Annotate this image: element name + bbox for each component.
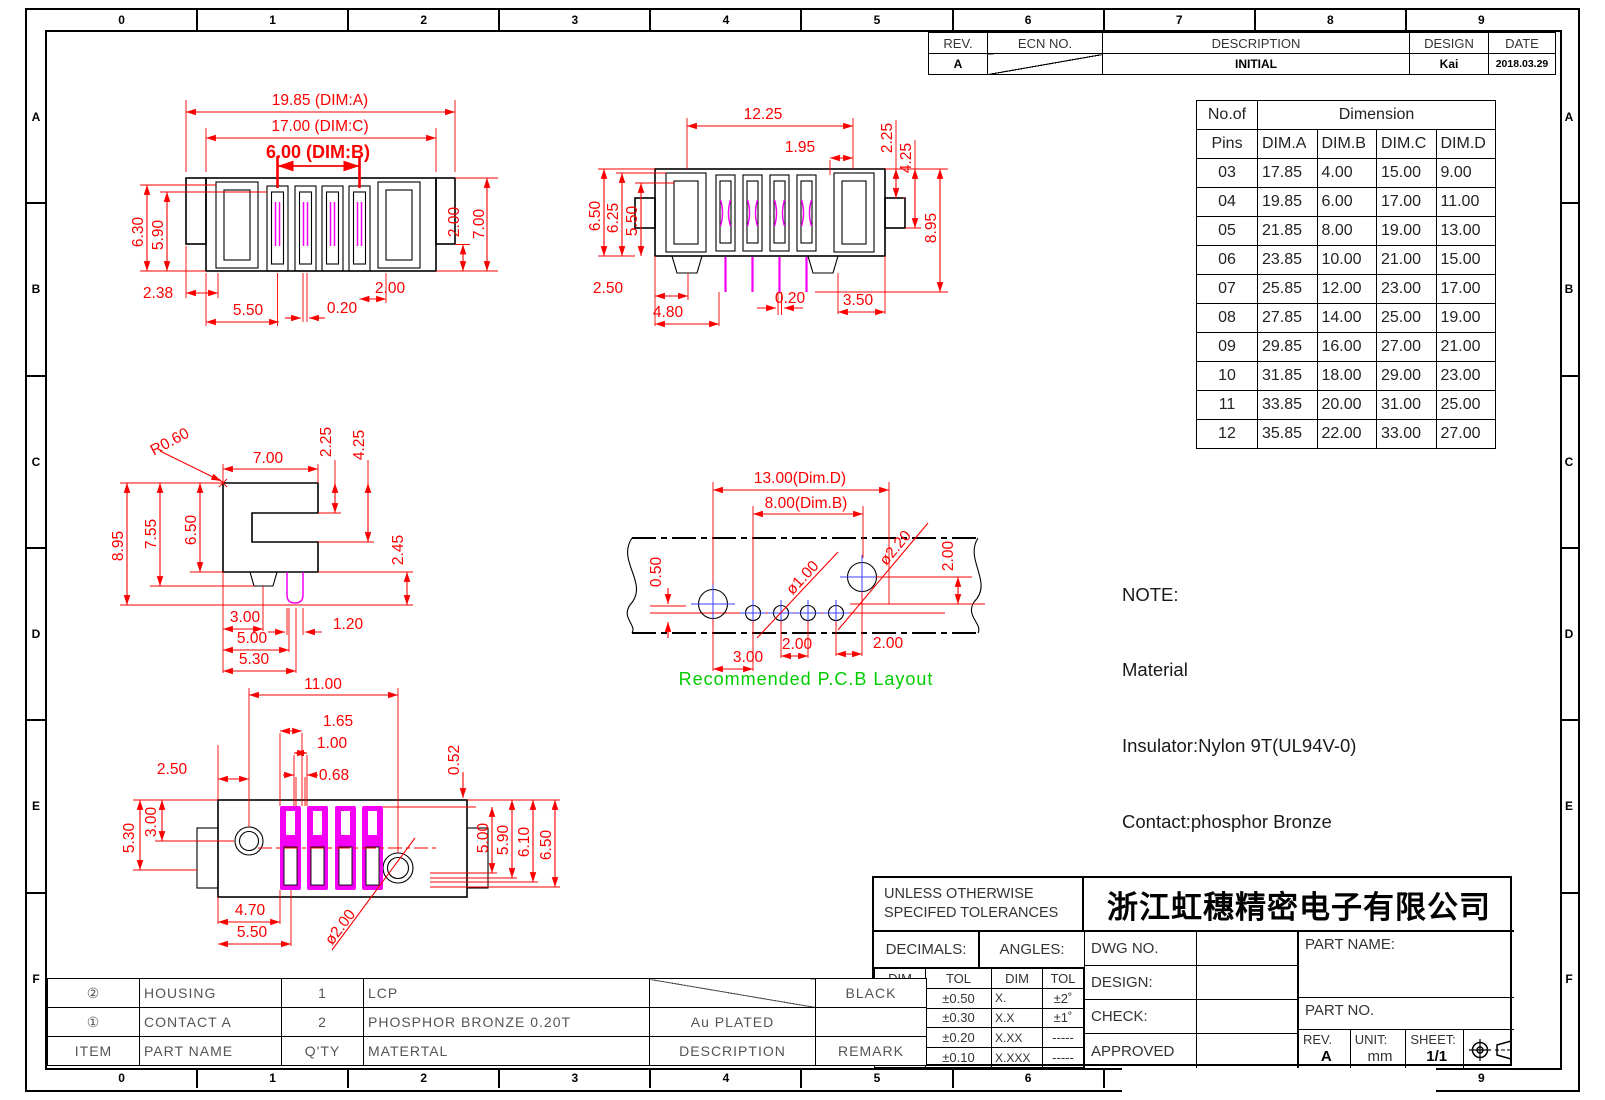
material: PHOSPHOR BRONZE 0.20T xyxy=(364,1008,650,1037)
dim-a: 21.85 xyxy=(1258,217,1318,246)
dim-label: 4.25 xyxy=(351,430,368,460)
qty: 2 xyxy=(282,1008,364,1037)
dim-label: 6.50 xyxy=(538,830,555,861)
title-block: UNLESS OTHERWISE SPECIFED TOLERANCES 浙江虹… xyxy=(872,876,1512,1066)
pins-header-line1: No.of xyxy=(1197,101,1258,130)
zone-label: B xyxy=(1560,204,1578,376)
dimension-group-header: Dimension xyxy=(1258,101,1496,130)
sheet-value: 1/1 xyxy=(1410,1048,1463,1065)
zone-label: 1 xyxy=(198,1068,349,1088)
tol-val: ±2˚ xyxy=(1043,988,1084,1008)
tol-val: ----- xyxy=(1043,1048,1084,1068)
col-header-dim-b: DIM.B xyxy=(1317,130,1377,159)
zone-label: 3 xyxy=(500,10,651,30)
part-name-label: PART NAME: xyxy=(1299,932,1514,998)
approved-value xyxy=(1197,1034,1297,1068)
pin-count: 12 xyxy=(1197,420,1258,449)
pin-count: 04 xyxy=(1197,188,1258,217)
dim-label: 1.95 xyxy=(785,139,815,156)
top-view: ø2.00 11.00 1.65 1.00 0.68 2.50 5.30 3.0… xyxy=(121,676,560,950)
dim-col-header: DIM xyxy=(992,969,1043,989)
dim-d: 13.00 xyxy=(1436,217,1496,246)
table-row: 0623.8510.0021.0015.00 xyxy=(1197,246,1496,275)
tol-val: ±0.50 xyxy=(926,988,992,1008)
zone-label: 2 xyxy=(349,1068,500,1088)
dim-label: 2.25 xyxy=(879,123,896,153)
dim-label: 12.25 xyxy=(744,106,783,123)
table-row: 1133.8520.0031.0025.00 xyxy=(1197,391,1496,420)
dim-label: 8.00(Dim.B) xyxy=(765,495,848,512)
description-value: INITIAL xyxy=(1103,54,1410,75)
decimals-label: DECIMALS: xyxy=(874,932,980,967)
zone-label: B xyxy=(27,204,45,376)
tolerance-title: UNLESS OTHERWISE SPECIFED TOLERANCES xyxy=(874,878,1084,932)
dim-b: 4.00 xyxy=(1317,159,1377,188)
material: LCP xyxy=(364,979,650,1008)
col-header-dim-a: DIM.A xyxy=(1258,130,1318,159)
zone-strip-right: A B C D E F xyxy=(1560,32,1578,1064)
check-label: CHECK: xyxy=(1085,1000,1197,1033)
projection-symbol-cell xyxy=(1464,1030,1514,1068)
part-info-section: PART NAME: PART NO. REV. A UNIT: mm SHEE… xyxy=(1297,932,1514,1068)
table-row: 1235.8522.0033.0027.00 xyxy=(1197,420,1496,449)
dim-label: 3.00 xyxy=(230,609,261,626)
dim-label: 5.30 xyxy=(121,823,138,854)
dim-label: 0.20 xyxy=(327,300,358,317)
pins-header-line2: Pins xyxy=(1197,130,1258,159)
approved-label: APPROVED xyxy=(1085,1034,1197,1068)
dim-label: 6.30 xyxy=(130,217,147,248)
dim-a: 31.85 xyxy=(1258,362,1318,391)
dim-d: 9.00 xyxy=(1436,159,1496,188)
dim-label: 2.00 xyxy=(375,280,406,297)
third-angle-projection-icon xyxy=(1468,1037,1514,1063)
item-header: ITEM xyxy=(48,1037,140,1066)
design-value xyxy=(1197,966,1297,999)
dim-label: 2.25 xyxy=(318,427,335,457)
dim-label: 1.65 xyxy=(323,713,353,730)
zone-label: F xyxy=(27,894,45,1064)
qty-header: Q'TY xyxy=(282,1037,364,1066)
dim-label: 0.50 xyxy=(648,557,665,588)
note-line: Material xyxy=(1122,657,1436,682)
tol-val: ----- xyxy=(1043,1028,1084,1048)
pin-dimension-table: No.of Dimension Pins DIM.A DIM.B DIM.C D… xyxy=(1196,100,1496,449)
dim-label: 4.80 xyxy=(653,304,684,321)
pin-count: 08 xyxy=(1197,304,1258,333)
dim-label: 2.38 xyxy=(143,285,173,302)
dim-label: 6.50 xyxy=(587,201,604,232)
dim-label: 0.68 xyxy=(319,767,349,784)
unit-value: mm xyxy=(1355,1048,1406,1065)
dim-c: 31.00 xyxy=(1377,391,1437,420)
dim-c: 23.00 xyxy=(1377,275,1437,304)
design-value: Kai xyxy=(1410,54,1489,75)
design-header: DESIGN xyxy=(1410,33,1489,54)
zone-label: E xyxy=(27,721,45,893)
dim-label: 2.00 xyxy=(873,635,904,652)
remark: BLACK xyxy=(816,979,927,1008)
table-row: 0317.854.0015.009.00 xyxy=(1197,159,1496,188)
dim-label: 5.50 xyxy=(237,924,268,941)
zone-label: 9 xyxy=(1407,10,1556,30)
rev-label: REV. xyxy=(1303,1032,1332,1047)
dim-label: 13.00(Dim.D) xyxy=(754,470,846,487)
dim-label: 6.00 (DIM:B) xyxy=(266,142,370,162)
dim-label: 17.00 (DIM:C) xyxy=(271,118,368,135)
dim-label: 2.50 xyxy=(593,280,624,297)
side-view: R0.60 7.00 2.25 4.25 8.95 7.55 6.50 2.45… xyxy=(110,425,413,673)
tol-val: ±0.30 xyxy=(926,1008,992,1028)
dim-c: 17.00 xyxy=(1377,188,1437,217)
table-row: 0827.8514.0025.0019.00 xyxy=(1197,304,1496,333)
tolerance-title-line1: UNLESS OTHERWISE xyxy=(884,885,1082,904)
zone-label: 5 xyxy=(802,1068,953,1088)
dim-label: 19.85 (DIM:A) xyxy=(272,92,368,109)
table-header-row: ITEM PART NAME Q'TY MATERTAL DESCRIPTION… xyxy=(48,1037,927,1066)
dim-label: 2.00 xyxy=(940,541,957,572)
dim-label: 7.55 xyxy=(143,519,160,549)
description-header: DESCRIPTION xyxy=(1103,33,1410,54)
table-row: 0725.8512.0023.0017.00 xyxy=(1197,275,1496,304)
pin-count: 06 xyxy=(1197,246,1258,275)
zone-label: 6 xyxy=(954,1068,1105,1088)
revision-table: REV. ECN NO. DESCRIPTION DESIGN DATE A I… xyxy=(928,32,1556,75)
dim-a: 17.85 xyxy=(1258,159,1318,188)
ecn-cell-diagonal xyxy=(988,54,1103,75)
zone-label: 5 xyxy=(802,10,953,30)
zone-label: C xyxy=(1560,377,1578,549)
dim-b: 20.00 xyxy=(1317,391,1377,420)
dim-c: 25.00 xyxy=(1377,304,1437,333)
dim-label: 5.00 xyxy=(237,630,268,647)
table-row: 0419.856.0017.0011.00 xyxy=(1197,188,1496,217)
unit-cell: UNIT: mm xyxy=(1351,1030,1407,1068)
ecn-header: ECN NO. xyxy=(988,33,1103,54)
dim-d: 19.00 xyxy=(1436,304,1496,333)
dim-label: ø2.20 xyxy=(876,527,915,569)
engineering-drawing-page: 0 1 2 3 4 5 6 7 8 9 0 1 2 3 4 5 6 7 8 9 … xyxy=(0,0,1605,1100)
dim-label: 5.00 xyxy=(475,823,492,854)
dim-label: 3.50 xyxy=(843,292,874,309)
dim-c: 15.00 xyxy=(1377,159,1437,188)
dim-label: 5.90 xyxy=(150,220,167,251)
dim-label: 0.20 xyxy=(775,290,806,307)
sheet-label: SHEET: xyxy=(1410,1032,1456,1047)
table-row: 0521.858.0019.0013.00 xyxy=(1197,217,1496,246)
dim-c: 33.00 xyxy=(1377,420,1437,449)
zone-label: 2 xyxy=(349,10,500,30)
dim-d: 25.00 xyxy=(1436,391,1496,420)
col-header-dim-c: DIM.C xyxy=(1377,130,1437,159)
dim-b: 6.00 xyxy=(1317,188,1377,217)
tol-val: ±0.20 xyxy=(926,1028,992,1048)
zone-label: 0 xyxy=(47,1068,198,1088)
table-row: 0929.8516.0027.0021.00 xyxy=(1197,333,1496,362)
dim-d: 23.00 xyxy=(1436,362,1496,391)
dim-label: 5.50 xyxy=(233,302,264,319)
dim-label: 6.10 xyxy=(516,827,533,858)
dim-label: 3.00 xyxy=(733,649,764,666)
zone-label: 7 xyxy=(1105,10,1256,30)
pcb-layout-view: 13.00(Dim.D) 8.00(Dim.B) 0.50 ø1.00 ø2.2… xyxy=(627,470,985,689)
dim-d: 17.00 xyxy=(1436,275,1496,304)
zone-label: 4 xyxy=(651,10,802,30)
dim-c: 29.00 xyxy=(1377,362,1437,391)
dim-label: 6.25 xyxy=(605,203,622,233)
dim-label: 6.50 xyxy=(183,515,200,546)
pin-count: 03 xyxy=(1197,159,1258,188)
tol-dim: X.XXX xyxy=(992,1048,1043,1068)
zone-strip-top: 0 1 2 3 4 5 6 7 8 9 xyxy=(47,10,1556,30)
tol-val: ±1˚ xyxy=(1043,1008,1084,1028)
material-header: MATERTAL xyxy=(364,1037,650,1066)
dim-b: 8.00 xyxy=(1317,217,1377,246)
qty: 1 xyxy=(282,979,364,1008)
dim-label: 7.00 xyxy=(253,450,284,467)
zone-label: 8 xyxy=(1256,10,1407,30)
tol-val: ±0.10 xyxy=(926,1048,992,1068)
col-header-dim-d: DIM.D xyxy=(1436,130,1496,159)
rev-value: A xyxy=(929,54,988,75)
dim-b: 16.00 xyxy=(1317,333,1377,362)
item-number: ② xyxy=(48,979,140,1008)
dim-a: 23.85 xyxy=(1258,246,1318,275)
angles-label: ANGLES: xyxy=(980,932,1084,967)
dim-label: 2.00 xyxy=(782,636,813,653)
zone-label: 3 xyxy=(500,1068,651,1088)
dim-label: ø2.00 xyxy=(322,906,360,948)
dim-b: 22.00 xyxy=(1317,420,1377,449)
item-number: ① xyxy=(48,1008,140,1037)
pin-count: 11 xyxy=(1197,391,1258,420)
zone-label: A xyxy=(1560,32,1578,204)
dim-label: 8.95 xyxy=(923,213,940,243)
zone-label: C xyxy=(27,377,45,549)
dim-label: 1.20 xyxy=(333,616,364,633)
dim-label: 5.30 xyxy=(239,651,270,668)
dim-label: 5.90 xyxy=(495,825,512,856)
dim-label: 5.50 xyxy=(624,206,641,237)
description-diagonal xyxy=(650,979,816,1008)
dwg-no-label: DWG NO. xyxy=(1085,932,1197,965)
dim-c: 19.00 xyxy=(1377,217,1437,246)
part-name-header: PART NAME xyxy=(140,1037,282,1066)
design-label: DESIGN: xyxy=(1085,966,1197,999)
dim-a: 19.85 xyxy=(1258,188,1318,217)
contact-slots xyxy=(267,186,370,271)
pcb-layout-caption: Recommended P.C.B Layout xyxy=(679,669,934,689)
dim-a: 25.85 xyxy=(1258,275,1318,304)
dwg-no-value xyxy=(1197,932,1297,965)
dim-a: 29.85 xyxy=(1258,333,1318,362)
description: Au PLATED xyxy=(650,1008,816,1037)
part-name: HOUSING xyxy=(140,979,282,1008)
zone-label: 6 xyxy=(954,10,1105,30)
dim-d: 11.00 xyxy=(1436,188,1496,217)
tol-dim: X. xyxy=(992,988,1043,1008)
dim-c: 27.00 xyxy=(1377,333,1437,362)
dim-d: 15.00 xyxy=(1436,246,1496,275)
dim-label: 4.70 xyxy=(235,902,266,919)
zone-label: 0 xyxy=(47,10,198,30)
rev-cell: REV. A xyxy=(1299,1030,1351,1068)
zone-label: 4 xyxy=(651,1068,802,1088)
section-view: 12.25 1.95 2.25 4.25 8.95 6.50 6.25 5.50… xyxy=(587,106,948,326)
table-row: 1031.8518.0029.0023.00 xyxy=(1197,362,1496,391)
remark xyxy=(816,1008,927,1037)
dim-label: 2.00 xyxy=(446,207,463,238)
sheet-cell: SHEET: 1/1 xyxy=(1406,1030,1464,1068)
date-header: DATE xyxy=(1489,33,1556,54)
description-header: DESCRIPTION xyxy=(650,1037,816,1066)
dim-label: 2.50 xyxy=(157,761,188,778)
remark-header: REMARK xyxy=(816,1037,927,1066)
zone-label: E xyxy=(1560,721,1578,893)
part-name: CONTACT A xyxy=(140,1008,282,1037)
tol-col-header: TOL xyxy=(1043,969,1084,989)
tolerance-title-line2: SPECIFED TOLERANCES xyxy=(884,904,1082,923)
dim-a: 35.85 xyxy=(1258,420,1318,449)
parts-table: ② HOUSING 1 LCP BLACK ① CONTACT A 2 PHOS… xyxy=(47,978,927,1066)
rev-value: A xyxy=(1303,1048,1350,1065)
dim-label: 7.00 xyxy=(471,209,488,240)
note-line: Insulator:Nylon 9T(UL94V-0) xyxy=(1122,733,1436,758)
dim-b: 14.00 xyxy=(1317,304,1377,333)
zone-label: 1 xyxy=(198,10,349,30)
zone-label: D xyxy=(1560,549,1578,721)
zone-label: F xyxy=(1560,894,1578,1064)
part-no-label: PART NO. xyxy=(1299,998,1514,1030)
tol-dim: X.X xyxy=(992,1008,1043,1028)
pin-count: 07 xyxy=(1197,275,1258,304)
tol-dim: X.XX xyxy=(992,1028,1043,1048)
dim-label: 1.00 xyxy=(317,735,348,752)
zone-label: D xyxy=(27,549,45,721)
note-line: NOTE: xyxy=(1122,582,1436,607)
date-value: 2018.03.29 xyxy=(1489,54,1556,75)
tolerance-section-headers: DECIMALS: ANGLES: xyxy=(874,932,1084,968)
dim-a: 27.85 xyxy=(1258,304,1318,333)
dim-label: 0.52 xyxy=(446,745,463,775)
dim-d: 27.00 xyxy=(1436,420,1496,449)
pin-count: 05 xyxy=(1197,217,1258,246)
tol-col-header: TOL xyxy=(926,969,992,989)
dim-a: 33.85 xyxy=(1258,391,1318,420)
dim-label: R0.60 xyxy=(148,425,193,460)
pin-count: 10 xyxy=(1197,362,1258,391)
unit-label: UNIT: xyxy=(1355,1032,1388,1047)
company-name: 浙江虹穗精密电子有限公司 xyxy=(1084,878,1514,932)
dim-c: 21.00 xyxy=(1377,246,1437,275)
dim-b: 10.00 xyxy=(1317,246,1377,275)
dim-label: 3.00 xyxy=(143,807,160,838)
approval-section: DWG NO. DESIGN: CHECK: APPROVED xyxy=(1084,932,1297,1068)
table-row: ② HOUSING 1 LCP BLACK xyxy=(48,979,927,1008)
rev-header: REV. xyxy=(929,33,988,54)
dim-label: 2.45 xyxy=(390,535,407,565)
dim-label: ø1.00 xyxy=(783,557,823,598)
note-line: Contact:phosphor Bronze xyxy=(1122,809,1436,834)
dim-label: 11.00 xyxy=(304,676,342,693)
check-value xyxy=(1197,1000,1297,1033)
dim-d: 21.00 xyxy=(1436,333,1496,362)
front-view: 19.85 (DIM:A) 17.00 (DIM:C) 6.00 (DIM:B)… xyxy=(130,92,498,326)
pin-count: 09 xyxy=(1197,333,1258,362)
dim-b: 12.00 xyxy=(1317,275,1377,304)
table-row: ① CONTACT A 2 PHOSPHOR BRONZE 0.20T Au P… xyxy=(48,1008,927,1037)
zone-label: A xyxy=(27,32,45,204)
dim-b: 18.00 xyxy=(1317,362,1377,391)
dim-label: 8.95 xyxy=(110,531,127,561)
zone-strip-left: A B C D E F xyxy=(27,32,45,1064)
